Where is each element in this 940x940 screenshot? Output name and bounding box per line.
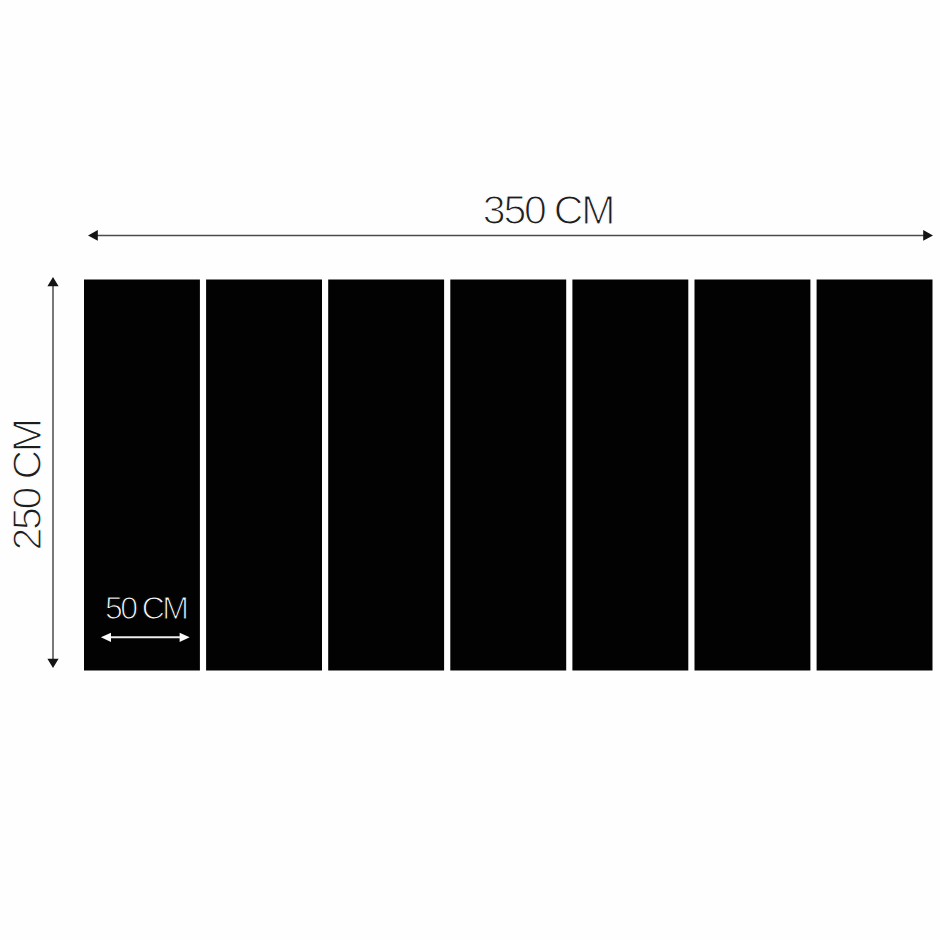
svg-text:50 CM: 50 CM bbox=[105, 590, 187, 626]
svg-text:350 CM: 350 CM bbox=[483, 187, 613, 233]
svg-text:250 CM: 250 CM bbox=[4, 420, 50, 550]
